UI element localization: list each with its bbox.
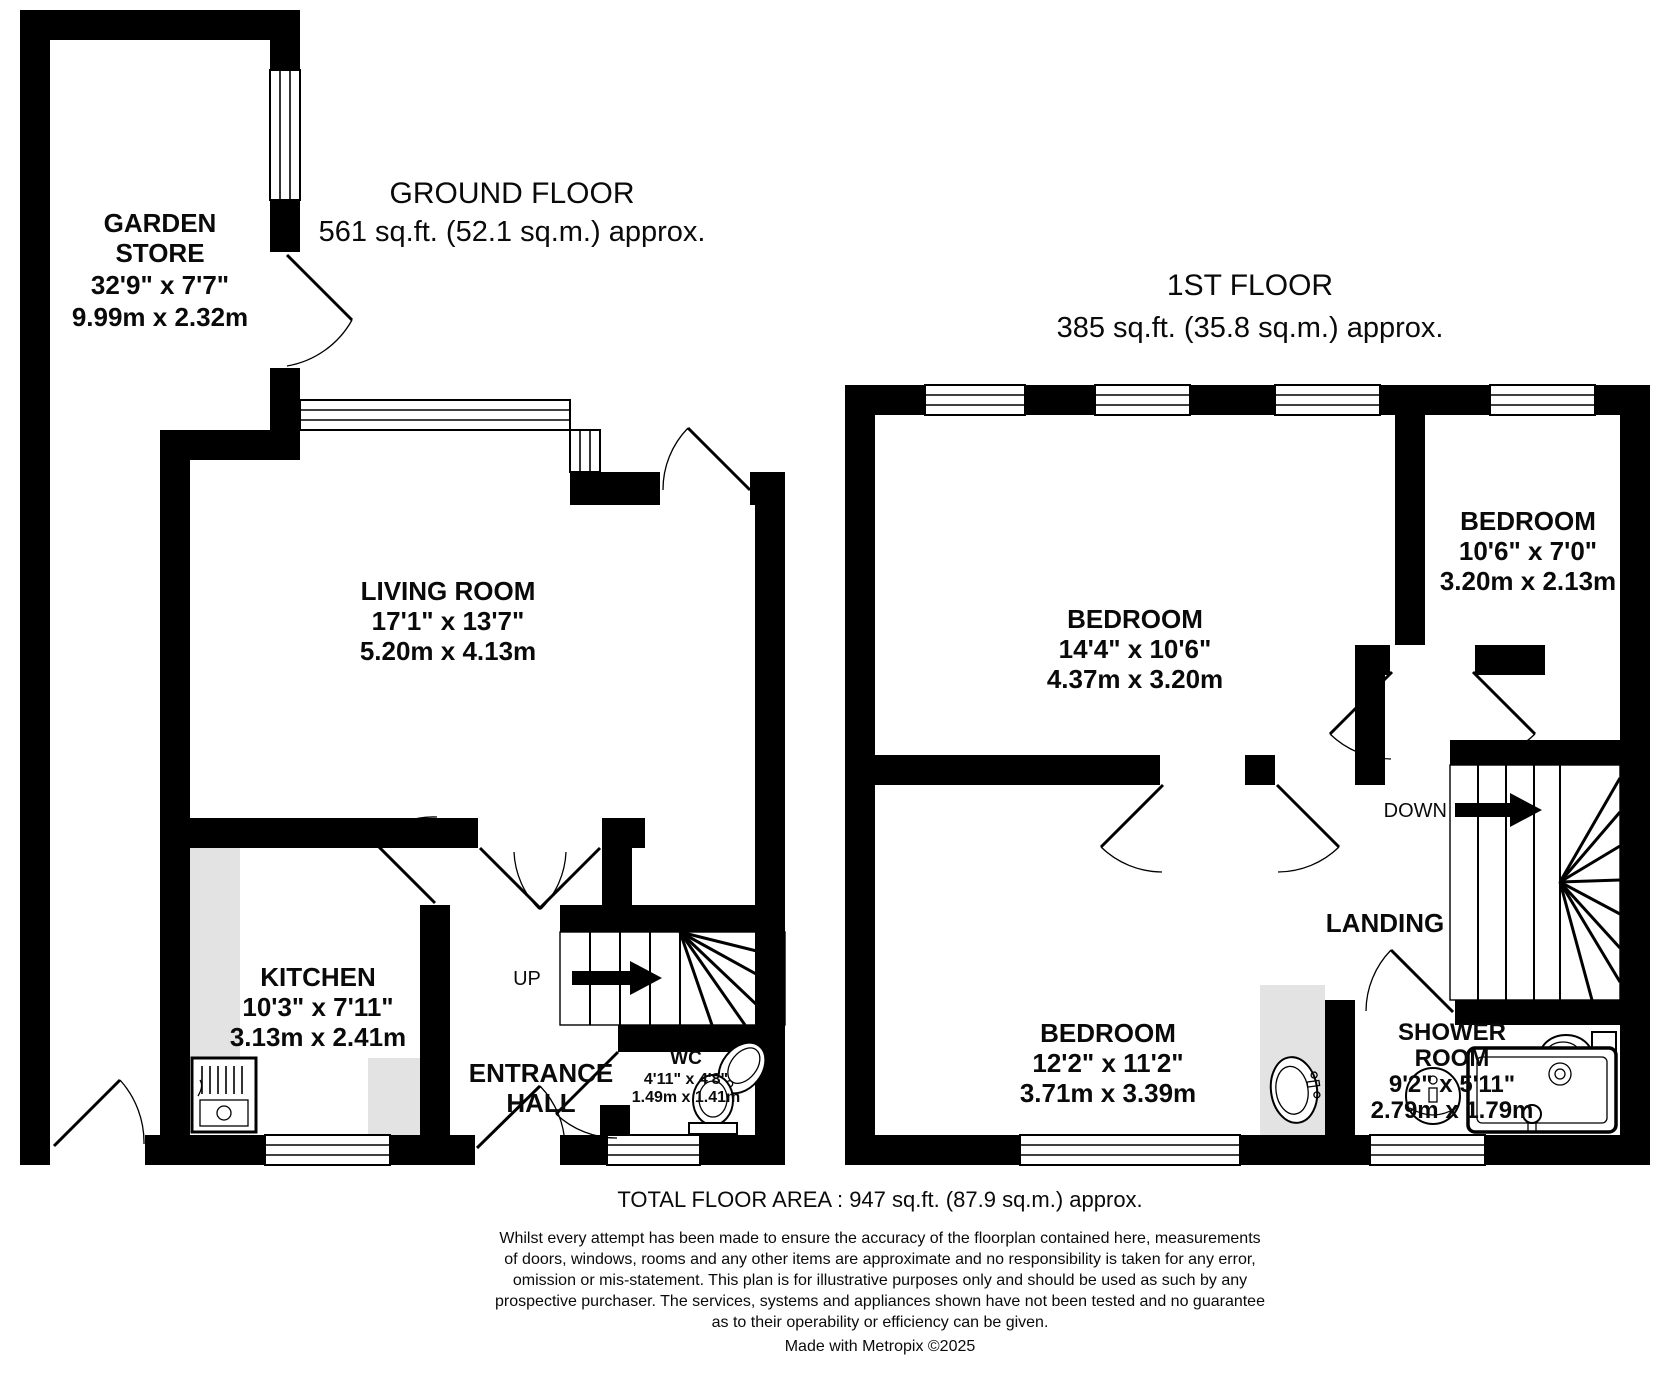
living-room-imperial: 17'1" x 13'7" bbox=[372, 606, 525, 636]
footer: TOTAL FLOOR AREA : 947 sq.ft. (87.9 sq.m… bbox=[495, 1187, 1265, 1355]
ground-floor-plan: UP GARDEN STORE 32'9" x 7'7" bbox=[20, 10, 785, 1165]
garden-store-label: GARDEN bbox=[104, 208, 217, 238]
front-door bbox=[663, 428, 750, 490]
bedroom-large-imperial: 14'4" x 10'6" bbox=[1059, 634, 1212, 664]
wc-imperial: 4'11" x 4'8" bbox=[644, 1071, 728, 1088]
metropix-credit: Made with Metropix ©2025 bbox=[785, 1338, 976, 1355]
disclaimer-line-5: as to their operability or efficiency ca… bbox=[712, 1314, 1049, 1331]
bedroom-small-window-2 bbox=[1490, 385, 1595, 415]
bedroom-large-label: BEDROOM bbox=[1067, 604, 1203, 634]
bedroom-mid-imperial: 12'2" x 11'2" bbox=[1032, 1048, 1183, 1078]
bedroom-small-window-1 bbox=[1275, 385, 1380, 415]
up-arrow-icon bbox=[572, 961, 662, 995]
shower-room-imperial: 9'2" x 5'11" bbox=[1389, 1071, 1515, 1098]
garden-store-label2: STORE bbox=[115, 238, 204, 268]
first-floor-plan: DOWN 1ST FLOO bbox=[845, 269, 1650, 1165]
bedroom-large-metric: 4.37m x 3.20m bbox=[1047, 664, 1223, 694]
up-label: UP bbox=[513, 968, 541, 990]
garden-store-back-door bbox=[54, 1080, 144, 1146]
garden-store-imperial: 32'9" x 7'7" bbox=[91, 270, 229, 300]
living-room-double-door bbox=[480, 848, 600, 909]
bedroom-small-metric: 3.20m x 2.13m bbox=[1440, 566, 1616, 596]
disclaimer-line-3: omission or mis-statement. This plan is … bbox=[513, 1272, 1247, 1289]
bedroom-large-door bbox=[1101, 785, 1163, 872]
shower-room-window bbox=[1370, 1135, 1485, 1165]
bedroom-small-label: BEDROOM bbox=[1460, 506, 1596, 536]
garden-store-door bbox=[287, 255, 352, 366]
first-floor-title: 1ST FLOOR bbox=[1167, 269, 1333, 302]
living-room-metric: 5.20m x 4.13m bbox=[360, 636, 536, 666]
kitchen-metric: 3.13m x 2.41m bbox=[230, 1022, 406, 1052]
floorplan-canvas: UP GARDEN STORE 32'9" x 7'7" bbox=[0, 0, 1680, 1390]
total-floor-area: TOTAL FLOOR AREA : 947 sq.ft. (87.9 sq.m… bbox=[617, 1187, 1142, 1212]
wc-metric: 1.49m x 1.41m bbox=[632, 1089, 741, 1106]
bedroom-mid-window bbox=[1020, 1135, 1240, 1165]
disclaimer-line-2: of doors, windows, rooms and any other i… bbox=[504, 1251, 1255, 1268]
down-label: DOWN bbox=[1384, 800, 1447, 822]
landing-label: LANDING bbox=[1326, 908, 1444, 938]
living-room-label: LIVING ROOM bbox=[361, 576, 536, 606]
gf-doors bbox=[54, 255, 750, 1148]
kitchen-sink-icon bbox=[192, 1058, 256, 1132]
stairs-up: UP bbox=[513, 932, 785, 1025]
floorplan-page: UP GARDEN STORE 32'9" x 7'7" bbox=[0, 0, 1680, 1390]
bedroom-small-imperial: 10'6" x 7'0" bbox=[1459, 536, 1597, 566]
shower-room-door bbox=[1366, 950, 1453, 1012]
entrance-hall-label2: HALL bbox=[506, 1088, 575, 1118]
living-room-window bbox=[300, 400, 570, 430]
bedroom-mid-door bbox=[1277, 785, 1339, 872]
wc-window bbox=[607, 1135, 700, 1165]
bedroom-large-window-2 bbox=[1095, 385, 1190, 415]
ff-doors bbox=[1101, 672, 1535, 1012]
garden-store-window bbox=[270, 70, 300, 200]
ground-floor-title: GROUND FLOOR bbox=[389, 177, 634, 210]
bedroom-large-window-1 bbox=[925, 385, 1025, 415]
ground-floor-area: 561 sq.ft. (52.1 sq.m.) approx. bbox=[319, 216, 706, 248]
entrance-hall-label: ENTRANCE bbox=[469, 1058, 613, 1088]
shower-room-label: SHOWER bbox=[1398, 1019, 1506, 1046]
first-floor-area: 385 sq.ft. (35.8 sq.m.) approx. bbox=[1057, 312, 1444, 344]
bedroom-mid-label: BEDROOM bbox=[1040, 1018, 1176, 1048]
shower-room-label2: ROOM bbox=[1415, 1045, 1490, 1072]
kitchen-window bbox=[265, 1135, 390, 1165]
down-arrow-icon bbox=[1455, 793, 1542, 827]
living-room-bay-window bbox=[570, 430, 600, 472]
wc-label: WC bbox=[670, 1048, 702, 1069]
disclaimer-line-4: prospective purchaser. The services, sys… bbox=[495, 1293, 1265, 1310]
garden-store-metric: 9.99m x 2.32m bbox=[72, 302, 248, 332]
shower-room-metric: 2.79m x 1.79m bbox=[1371, 1097, 1534, 1124]
bedroom-mid-metric: 3.71m x 3.39m bbox=[1020, 1078, 1196, 1108]
stairs-down: DOWN bbox=[1384, 765, 1620, 1000]
kitchen-label: KITCHEN bbox=[260, 962, 376, 992]
disclaimer-line-1: Whilst every attempt has been made to en… bbox=[499, 1230, 1260, 1247]
kitchen-imperial: 10'3" x 7'11" bbox=[242, 992, 393, 1022]
